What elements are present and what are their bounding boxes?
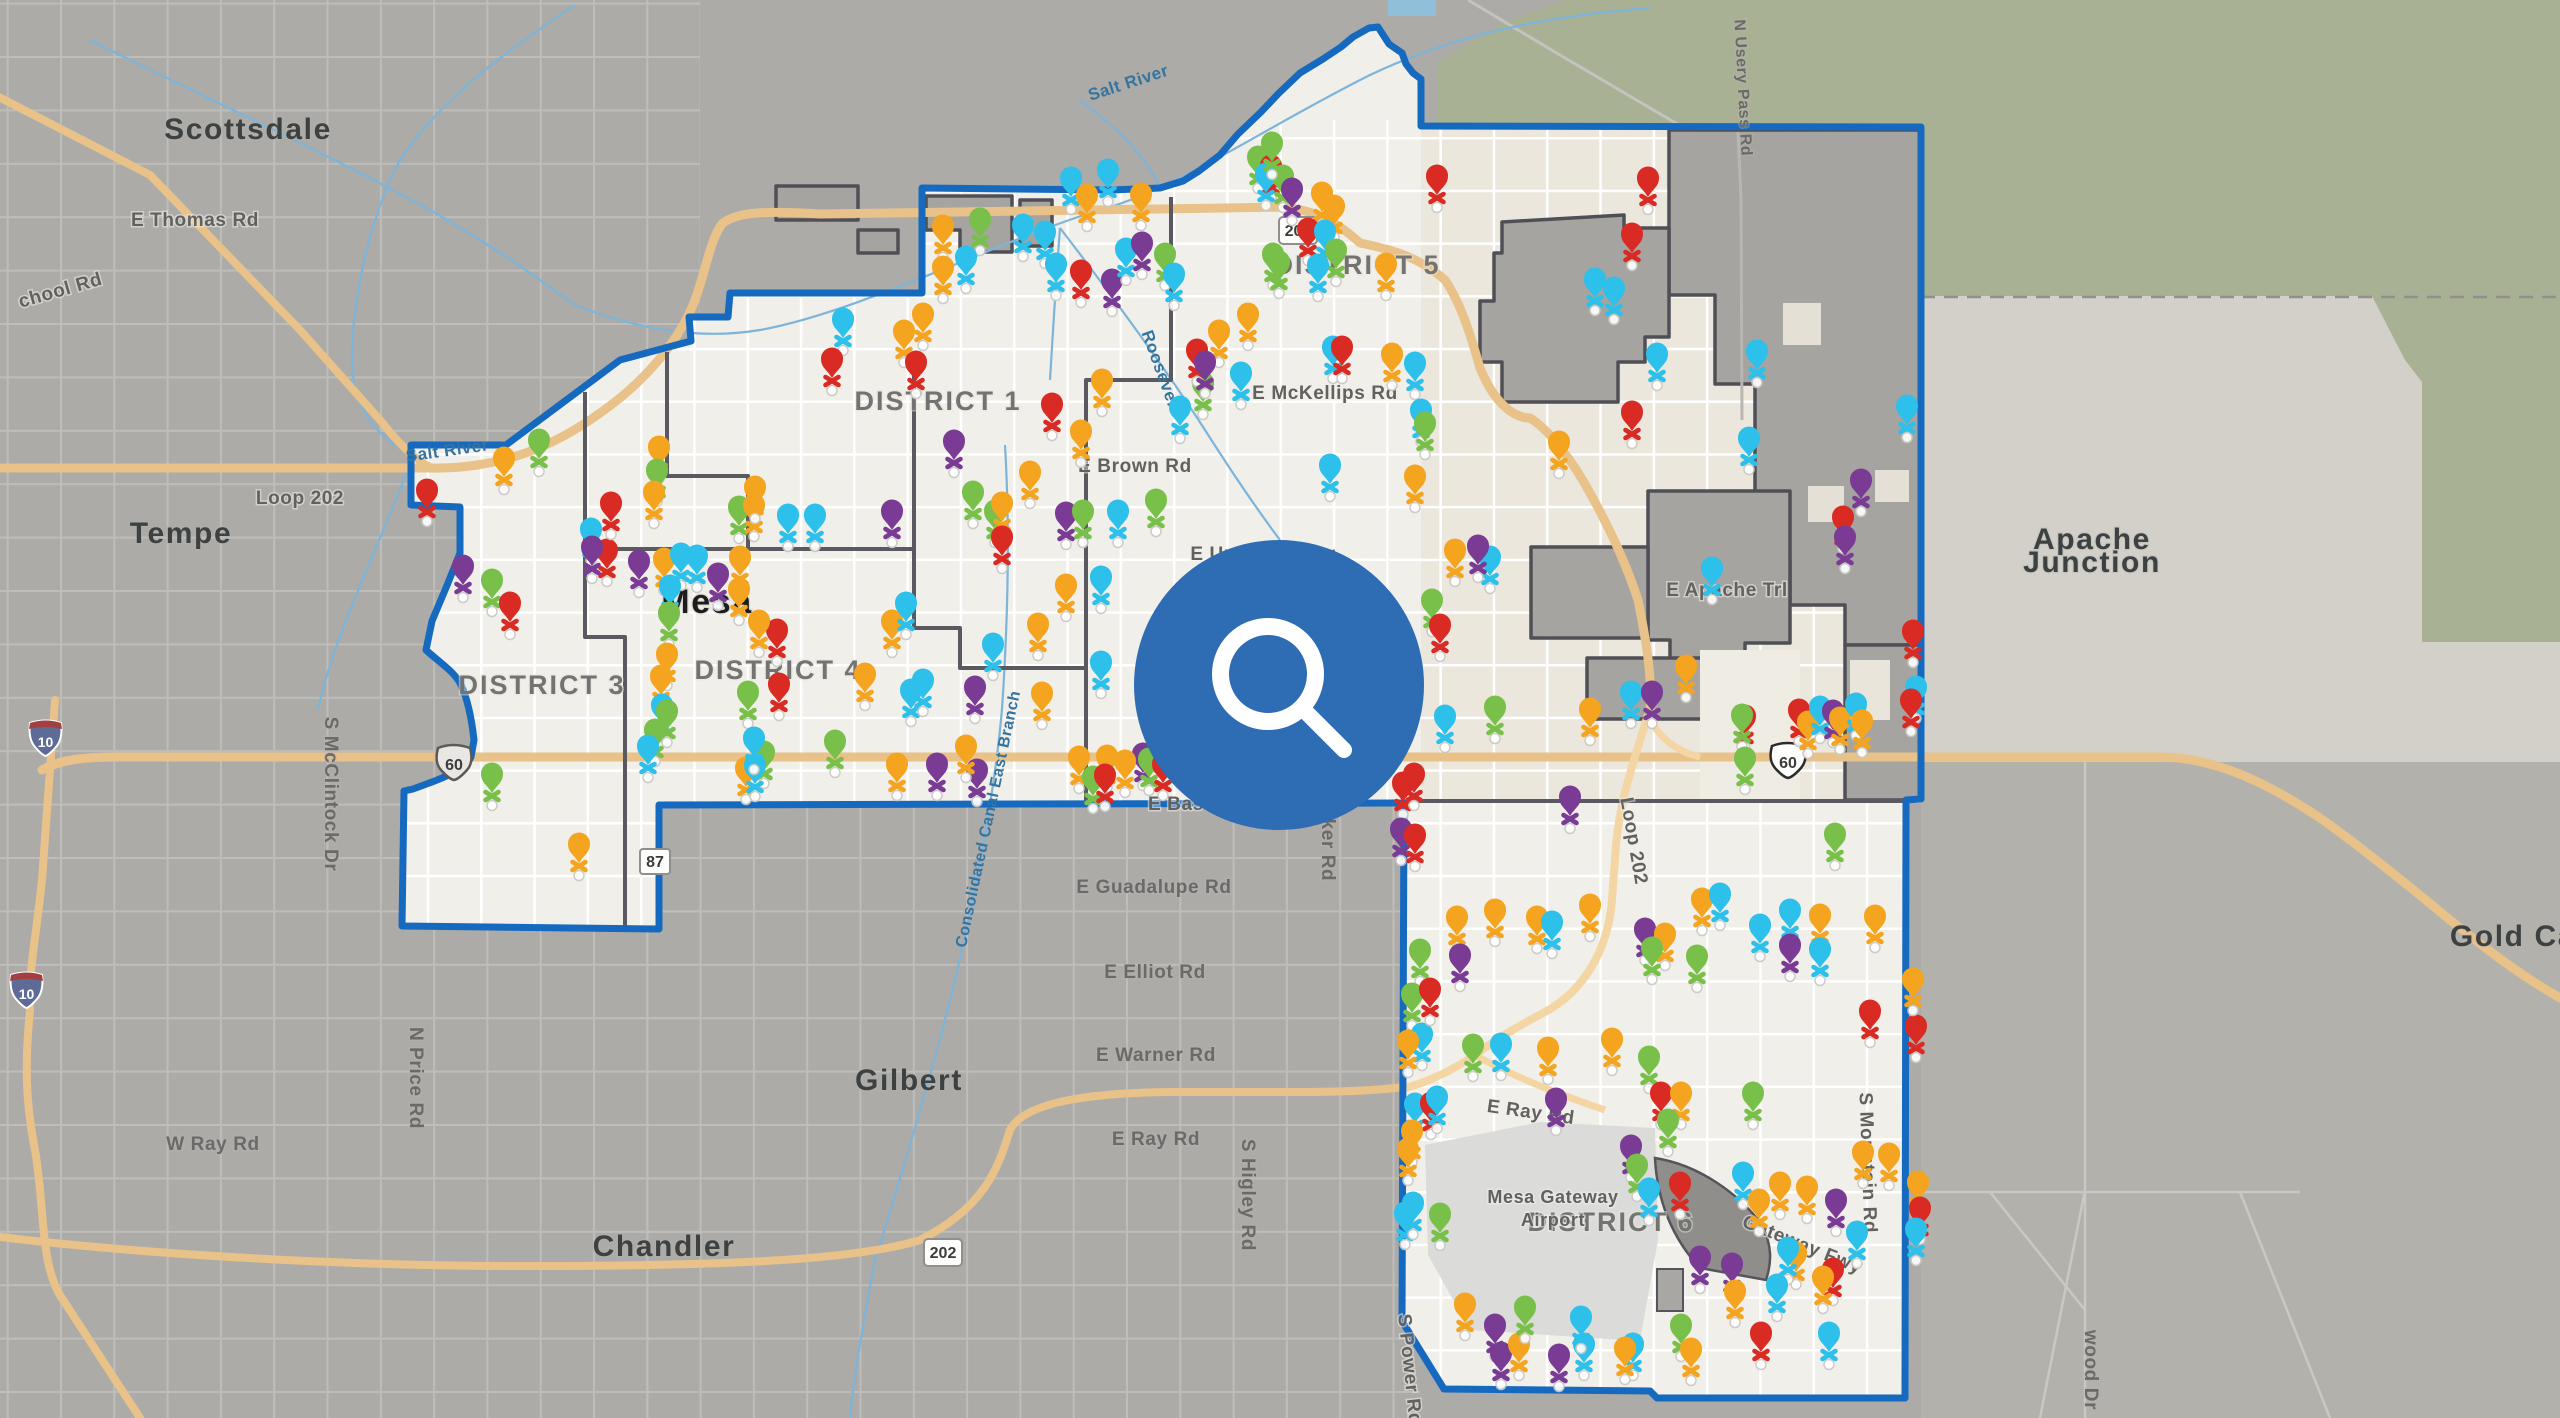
svg-text:87: 87	[646, 854, 664, 871]
svg-text:E Ray Rd: E Ray Rd	[1112, 1129, 1200, 1150]
svg-text:DISTRICT 3: DISTRICT 3	[458, 670, 625, 700]
svg-text:Loop 202: Loop 202	[256, 488, 344, 509]
svg-text:Junction: Junction	[2023, 546, 2161, 579]
svg-text:E Brown Rd: E Brown Rd	[1078, 456, 1192, 477]
svg-text:S Higley Rd: S Higley Rd	[1237, 1139, 1258, 1251]
svg-text:E Apache Trl: E Apache Trl	[1666, 580, 1788, 601]
svg-text:Gilbert: Gilbert	[855, 1064, 963, 1097]
svg-text:10: 10	[19, 986, 35, 1002]
svg-text:Gold Ca: Gold Ca	[2450, 920, 2560, 953]
svg-text:Airport: Airport	[1521, 1210, 1585, 1230]
svg-text:202: 202	[930, 1245, 957, 1262]
svg-text:DISTRICT 1: DISTRICT 1	[854, 386, 1021, 416]
svg-text:wood Dr: wood Dr	[2080, 1329, 2101, 1410]
svg-text:Tempe: Tempe	[130, 517, 232, 550]
svg-text:S McClintock Dr: S McClintock Dr	[320, 717, 341, 872]
svg-text:60: 60	[445, 757, 463, 774]
svg-text:E Guadalupe Rd: E Guadalupe Rd	[1076, 877, 1231, 898]
svg-text:Mesa Gateway: Mesa Gateway	[1487, 1187, 1618, 1207]
svg-text:60: 60	[1779, 755, 1797, 772]
svg-text:Scottsdale: Scottsdale	[164, 113, 332, 146]
svg-text:W Ray Rd: W Ray Rd	[166, 1134, 259, 1155]
svg-text:10: 10	[38, 734, 54, 750]
svg-text:E McKellips Rd: E McKellips Rd	[1252, 383, 1398, 404]
svg-text:E Warner Rd: E Warner Rd	[1096, 1045, 1216, 1066]
svg-text:E Elliot Rd: E Elliot Rd	[1104, 962, 1206, 983]
svg-text:DISTRICT 5: DISTRICT 5	[1273, 250, 1440, 280]
svg-text:Chandler: Chandler	[593, 1230, 736, 1263]
svg-text:N Price Rd: N Price Rd	[405, 1027, 426, 1129]
svg-text:E Thomas Rd: E Thomas Rd	[131, 210, 259, 231]
